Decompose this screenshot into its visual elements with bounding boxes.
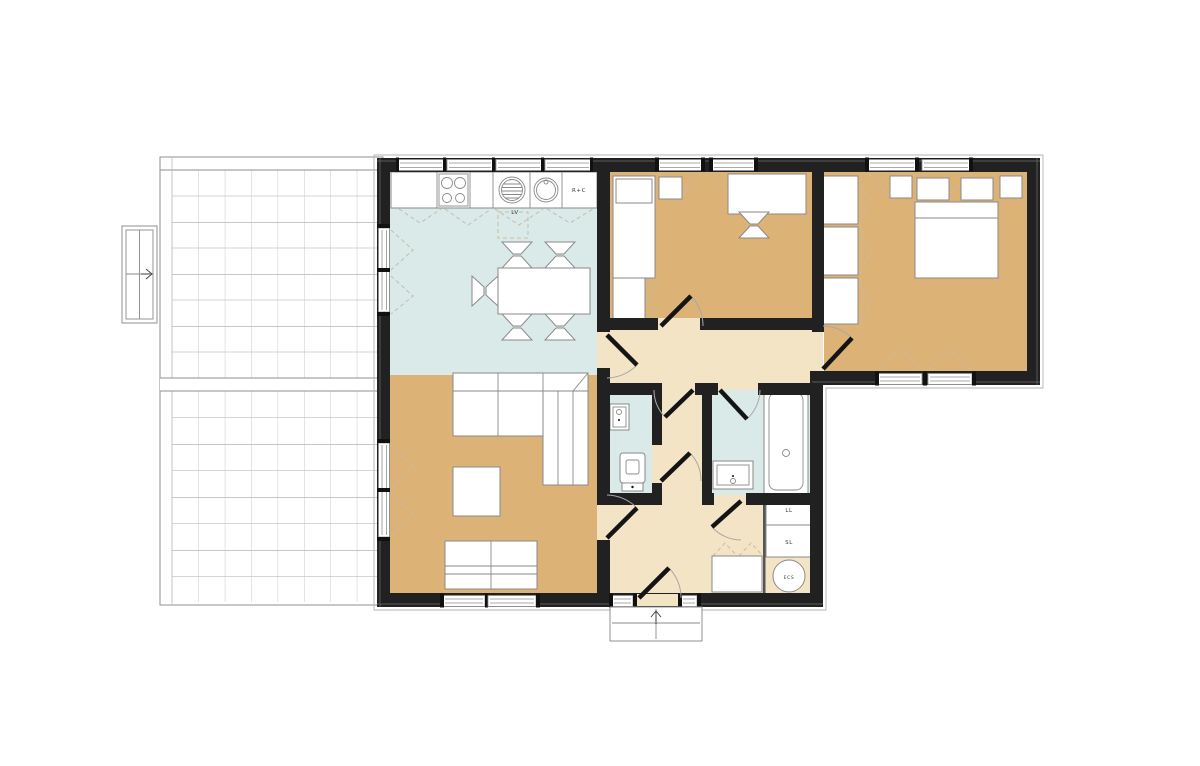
water-heater: ECS [773, 560, 805, 592]
vanity-icon [713, 461, 753, 489]
window [545, 158, 593, 172]
entry-steps [610, 607, 702, 641]
single-bed [613, 176, 655, 278]
floor-plan-page: LV R+C [0, 0, 1200, 766]
window [865, 158, 919, 172]
window [875, 372, 927, 386]
window [928, 372, 976, 386]
washer-label: LL [785, 508, 793, 514]
nightstand [1000, 176, 1022, 198]
window [922, 158, 973, 172]
desk [728, 174, 806, 214]
hall-closet [712, 556, 762, 592]
pillow [616, 179, 652, 203]
nightstand [659, 177, 682, 199]
window [655, 158, 705, 172]
window [709, 158, 758, 172]
window [447, 158, 495, 172]
window [496, 158, 544, 172]
fridge-label: R+C [572, 188, 586, 194]
coffee-table [453, 467, 500, 516]
dining-table [498, 268, 590, 314]
dryer: SL [766, 525, 812, 557]
dryer-label: SL [785, 540, 793, 546]
terrace-steps [122, 226, 157, 323]
toilet-icon [620, 453, 645, 491]
window [488, 594, 540, 608]
washbasin-icon [610, 404, 629, 430]
window [609, 594, 637, 608]
dishwasher-label: LV [511, 210, 518, 216]
pillow [917, 178, 949, 200]
bathtub-icon [764, 388, 808, 496]
terrace [160, 157, 383, 605]
wardrobe [613, 278, 645, 322]
master-wardrobe [822, 176, 858, 324]
window [377, 439, 390, 541]
water-heater-label: ECS [784, 575, 795, 581]
window [396, 158, 446, 172]
floor-plan-svg: LV R+C [0, 0, 1200, 766]
window [377, 224, 390, 316]
sideboard [445, 541, 537, 589]
nightstand [890, 176, 912, 198]
pillow [961, 178, 993, 200]
window [440, 594, 488, 608]
